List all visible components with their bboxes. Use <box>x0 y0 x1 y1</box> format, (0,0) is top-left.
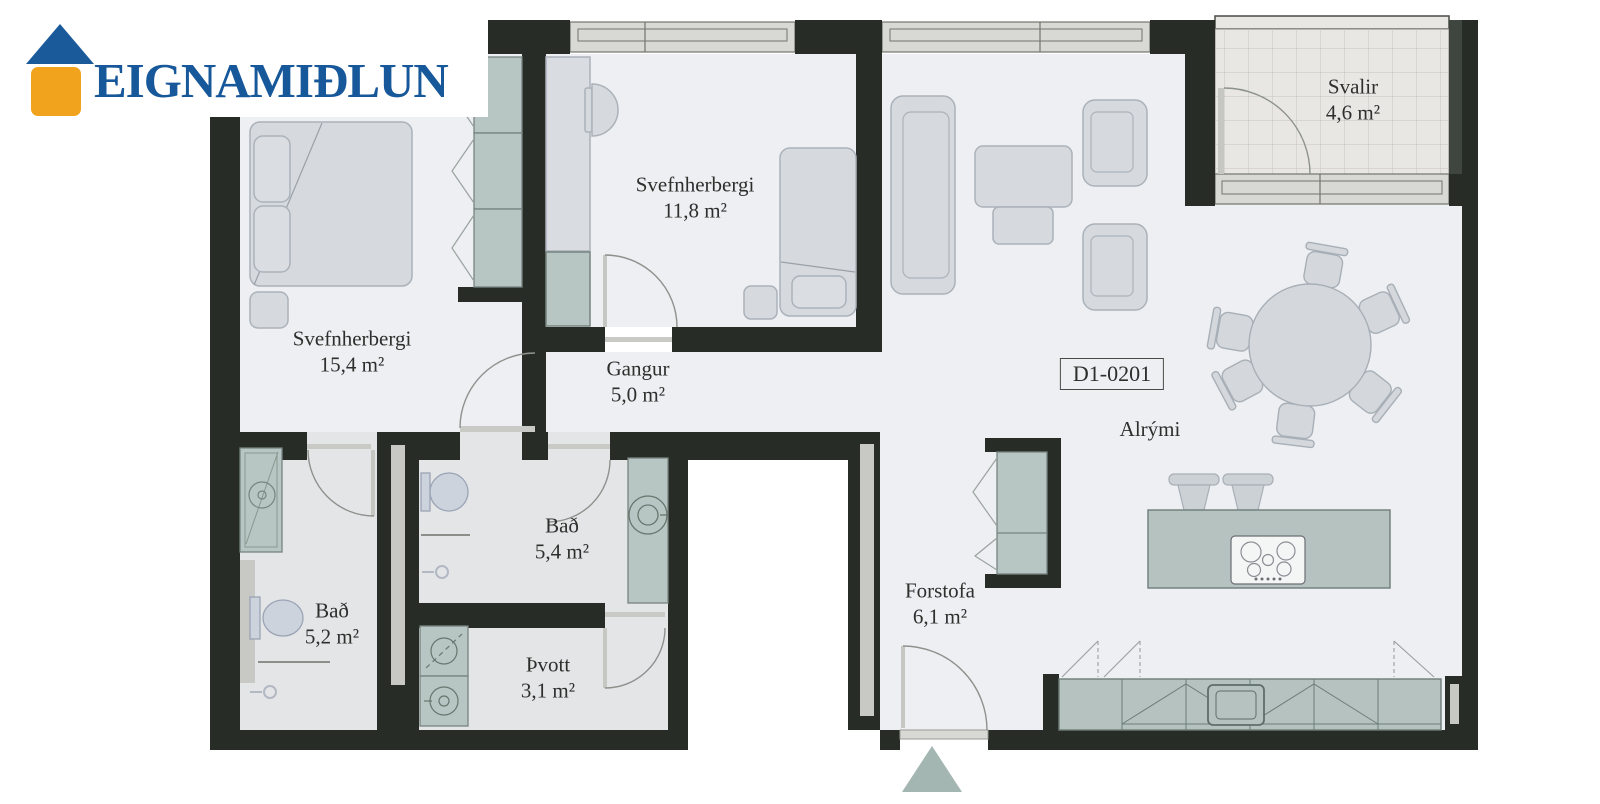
balcony-door-leaf <box>1218 88 1224 174</box>
shower-corner <box>240 448 282 552</box>
room-name: Svefnherbergi <box>636 172 755 196</box>
laundry-sink <box>420 626 468 676</box>
room-label-entrance: Forstofa 6,1 m² <box>905 578 975 629</box>
nightstand <box>250 292 288 328</box>
room-area: 6,1 m² <box>905 604 975 630</box>
closet <box>546 252 590 326</box>
room-label-bath1: Bað 5,2 m² <box>305 598 359 649</box>
room-area: 3,1 m² <box>521 678 575 704</box>
room-area: 5,4 m² <box>535 539 589 565</box>
room-label-balcony: Svalir 4,6 m² <box>1326 74 1380 125</box>
pillow <box>792 276 846 308</box>
logo-wordmark: EIGNAMIÐLUN <box>94 56 448 105</box>
room-name: Gangur <box>607 356 670 380</box>
room-name: Svalir <box>1328 74 1378 98</box>
shower-strip <box>628 458 668 603</box>
room-label-bedroom2: Svefnherbergi 11,8 m² <box>636 172 755 223</box>
balcony-glass-wall <box>1215 174 1449 204</box>
window-living <box>882 22 1150 52</box>
room-area: 5,2 m² <box>305 624 359 650</box>
floor-plan-page: Svefnherbergi 15,4 m² Svefnherbergi 11,8… <box>0 0 1600 804</box>
eignamidlun-logo: EIGNAMIÐLUN <box>0 0 488 117</box>
dining-table <box>1249 284 1371 406</box>
pillow <box>254 206 290 272</box>
room-area: 4,6 m² <box>1326 100 1380 126</box>
room-area: 5,0 m² <box>607 382 670 408</box>
sofa <box>891 96 955 294</box>
room-label-bedroom1: Svefnherbergi 15,4 m² <box>293 326 412 377</box>
house-logo-icon <box>24 20 96 116</box>
pillow <box>254 136 290 202</box>
nightstand <box>744 286 777 319</box>
room-area: 15,4 m² <box>293 352 412 378</box>
room-label-laundry: Þvott 3,1 m² <box>521 652 575 703</box>
armchair <box>1083 224 1147 310</box>
kitchen-sink <box>1208 685 1264 725</box>
room-label-hallway: Gangur 5,0 m² <box>607 356 670 407</box>
coffee-table <box>975 146 1072 207</box>
room-label-bath2: Bað 5,4 m² <box>535 513 589 564</box>
entry-door-leaf <box>901 646 905 728</box>
room-name: Forstofa <box>905 578 975 602</box>
room-label-living: Alrými <box>1120 417 1181 443</box>
desk-chair <box>585 88 592 132</box>
room-name: Alrými <box>1120 417 1181 441</box>
cooktop <box>1231 536 1305 584</box>
unit-id-badge: D1-0201 <box>1060 358 1164 390</box>
washing-machine <box>420 676 468 726</box>
room-area: 11,8 m² <box>636 198 755 224</box>
room-name: Þvott <box>526 652 570 676</box>
desk <box>546 57 590 251</box>
entry-direction-marker <box>902 746 962 792</box>
ottoman <box>993 207 1053 244</box>
toilet <box>250 597 303 639</box>
armchair <box>1083 100 1147 186</box>
window-bedroom2 <box>570 22 795 52</box>
balcony-railing <box>1215 16 1449 29</box>
room-name: Svefnherbergi <box>293 326 412 350</box>
unit-id: D1-0201 <box>1073 361 1151 386</box>
kitchen-counter <box>1059 679 1441 730</box>
room-name: Bað <box>545 513 579 537</box>
dining-chair <box>1272 402 1319 448</box>
room-name: Bað <box>315 598 349 622</box>
toilet <box>421 473 468 511</box>
